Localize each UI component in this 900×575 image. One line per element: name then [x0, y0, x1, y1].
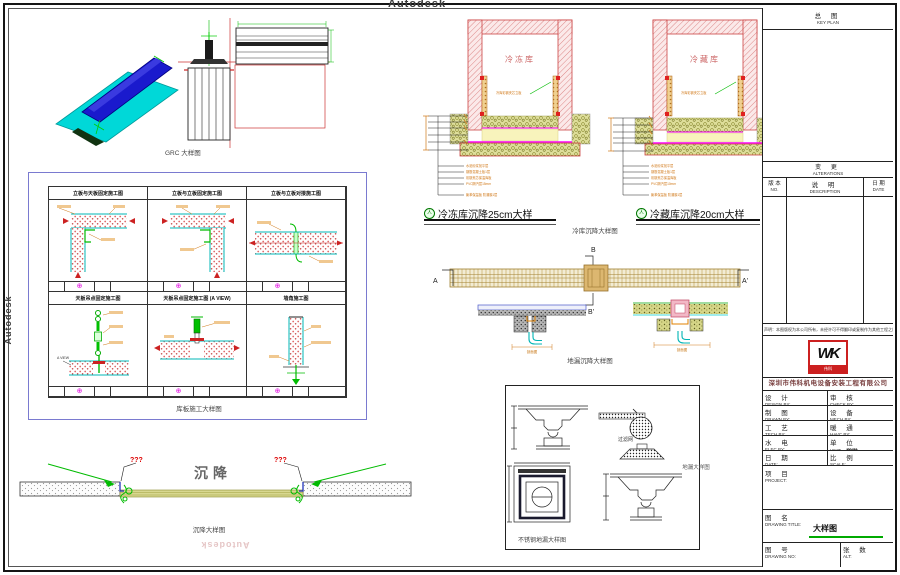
panel-cell-title: 天板吊点固定施工图 (A VIEW) — [148, 292, 247, 305]
keyplan-box — [763, 30, 893, 162]
freezer-layer-labels: 水泥砂浆找平层 钢筋混凝土板1层 彩钢夹芯保温库板 PVC隔汽层15mm 聚苯保… — [466, 163, 497, 197]
panel-cell-drawing — [148, 305, 247, 387]
watermark-left: Autodesk — [3, 290, 13, 350]
watermark-bottom: Autodesk — [195, 540, 255, 550]
detail-mark-icon: 人 — [424, 208, 435, 219]
keyplan-header: 总 图 KEY PLAN — [763, 8, 893, 30]
svg-text:钢筋混凝土板1层: 钢筋混凝土板1层 — [651, 169, 675, 174]
freezer-title-underline — [424, 219, 556, 225]
panel-cell-drawing: A VIEW — [49, 305, 148, 387]
drawing-title-value: 大样图 — [809, 523, 883, 538]
staff-row: 设 计DESIGN BY: 审 核CHECK BY: — [763, 391, 893, 406]
svg-text:彩钢夹芯保温库板: 彩钢夹芯保温库板 — [466, 175, 492, 180]
grc-detail-drawing: GRC 大样图 — [38, 12, 338, 162]
company-logo: WK 伟科 — [763, 336, 893, 378]
settlement-left-flag: ??? — [130, 457, 143, 464]
ss-drain-caption: 不锈钢地漏大样图 — [518, 536, 566, 544]
chiller-room-label: 冷藏库 — [690, 54, 720, 64]
section-mark-icon: ⊕ — [176, 388, 182, 396]
panel-cell-footer: ⊕ — [148, 387, 247, 397]
section-mark-icon: ⊕ — [275, 283, 281, 291]
panel-grid-caption: 库板施工大样图 — [119, 403, 279, 413]
alt-col-no: 版 本 NO. — [763, 178, 787, 196]
panel-cell-footer: ⊕ — [247, 387, 346, 397]
svg-text:水泥砂浆找平层: 水泥砂浆找平层 — [466, 163, 488, 168]
staff-row: 工 艺TECH BY: 暖 通HAVC BY: — [763, 421, 893, 436]
settlement-drawing: ??? ??? 沉降 — [18, 452, 418, 512]
freezer-section-drawing: 冷冻库 冷库彩钢夹芯立板 水泥砂浆找平层 钢筋混凝土板1层 彩钢夹芯保温库板 P… — [420, 14, 610, 204]
staff-row: 制 图DRAWN BY: 设 备MECH BY: — [763, 406, 893, 421]
staff-row-date-scale: 日 期DATE: 比 例SCALE: — [763, 451, 893, 466]
copyright-note: 声明：本图版权为本公司所有，未经许可不得翻印或复制作为其他工程之用 — [763, 324, 893, 336]
wk-logo-icon: WK 伟科 — [808, 340, 848, 374]
freezer-wall-note: 冷库彩钢夹芯立板 — [496, 90, 522, 95]
alterations-table — [763, 197, 893, 324]
drain-detail-caption: 地漏大样图 — [665, 463, 727, 471]
chiller-wall-note: 冷库彩钢夹芯立板 — [681, 90, 707, 95]
panel-detail-box: 立板与天板固定施工图 立板与立板固定施工图 立板与立板对接施工图 — [28, 172, 367, 420]
chiller-title-underline — [636, 219, 760, 225]
svg-text:PVC隔汽层10mm: PVC隔汽层10mm — [651, 181, 676, 186]
chiller-layer-labels: 水泥砂浆找平层 钢筋混凝土板1层 彩钢夹芯保温库板 PVC隔汽层10mm 聚苯保… — [651, 163, 682, 197]
svg-text:聚苯保温板 防潮膜1层: 聚苯保温板 防潮膜1层 — [651, 192, 682, 197]
alt-col-description: 说 明 DESCRIPTION — [787, 178, 864, 196]
drain-left-section-label: 剖面图 — [527, 349, 538, 354]
alterations-columns: 版 本 NO. 说 明 DESCRIPTION 日 期 DATE — [763, 178, 893, 197]
panel-cell-title: 墙角施工图 — [247, 292, 346, 305]
panel-cell-title: 立板与天板固定施工图 — [49, 187, 148, 200]
panel-cell-drawing — [247, 200, 346, 282]
marker-a-prime: A' — [742, 278, 748, 285]
panel-cell-drawing — [247, 305, 346, 387]
svg-text:钢筋混凝土板1层: 钢筋混凝土板1层 — [466, 169, 490, 174]
grc-caption: GRC 大样图 — [165, 148, 201, 157]
panel-cell-footer: ⊕ — [49, 282, 148, 292]
panel-cell-footer: ⊕ — [49, 387, 148, 397]
panel-cell-drawing — [148, 200, 247, 282]
company-name: 深圳市伟科机电设备安装工程有限公司 — [763, 378, 893, 391]
filter-mesh-label: 过滤网 — [618, 436, 633, 443]
alterations-header: 变 更 ALTERATIONS — [763, 162, 893, 178]
marker-a: A — [433, 278, 438, 285]
marker-b-prime: B' — [588, 309, 594, 316]
detail-mark-icon: 人 — [636, 208, 647, 219]
section-mark-icon: ⊕ — [275, 388, 281, 396]
cold-rooms-caption: 冷库沉降大样图 — [545, 225, 645, 235]
drain-caption: 地漏沉降大样图 — [540, 355, 640, 365]
section-mark-icon: ⊕ — [77, 283, 83, 291]
svg-text:水泥砂浆找平层: 水泥砂浆找平层 — [651, 163, 673, 168]
title-block: 总 图 KEY PLAN 变 更 ALTERATIONS 版 本 NO. 说 明… — [762, 8, 893, 567]
panel-cell-title: 立板与立板固定施工图 — [148, 187, 247, 200]
panel-cell-title: 天板吊点固定施工图 — [49, 292, 148, 305]
panel-cell-title: 立板与立板对接施工图 — [247, 187, 346, 200]
svg-text:聚苯保温板 防潮膜1层: 聚苯保温板 防潮膜1层 — [466, 192, 497, 197]
panel-cell-footer: ⊕ — [148, 282, 247, 292]
drain-right-section-label: 剖面图 — [677, 347, 688, 352]
drawing-no-row: 图 号DRAWING NO: 张 数ALT: — [763, 543, 893, 567]
drawing-sheet: Autodesk Autodesk Autodesk Autodesk — [0, 0, 900, 575]
settlement-label: 沉降 — [194, 465, 232, 481]
a-view-label: A VIEW — [57, 356, 70, 360]
panel-cell-drawing — [49, 200, 148, 282]
drain-plan-drawing: B B' A A' 剖面图 — [428, 243, 763, 355]
drawing-title-box: 图 名 DRAWING TITLE: 大样图 — [763, 510, 893, 543]
project-box: 项 目 PROJECT: — [763, 466, 893, 510]
freezer-room-label: 冷冻库 — [505, 54, 535, 64]
watermark-top: Autodesk — [388, 0, 446, 9]
panel-cell-footer: ⊕ — [247, 282, 346, 292]
staff-row-unit: 水 电ELEC BY: 单 位 UNIT:mm — [763, 436, 893, 451]
alt-col-date: 日 期 DATE — [864, 178, 893, 196]
settlement-caption: 沉降大样图 — [159, 524, 259, 534]
section-mark-icon: ⊕ — [176, 283, 182, 291]
panel-detail-grid: 立板与天板固定施工图 立板与立板固定施工图 立板与立板对接施工图 — [48, 186, 347, 398]
svg-text:彩钢夹芯保温库板: 彩钢夹芯保温库板 — [651, 175, 677, 180]
marker-b: B — [591, 247, 596, 254]
section-mark-icon: ⊕ — [77, 388, 83, 396]
svg-text:PVC隔汽层15mm: PVC隔汽层15mm — [466, 181, 491, 186]
